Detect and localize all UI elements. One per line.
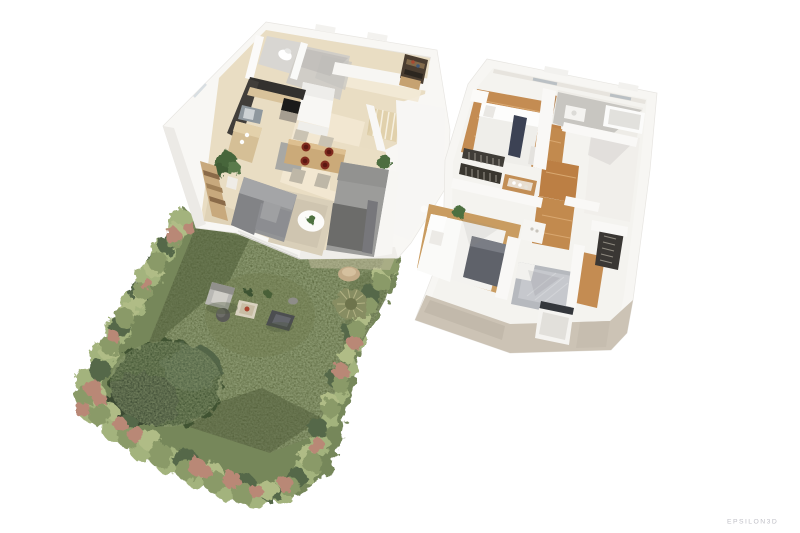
svg-text:EPSILON3D: EPSILON3D (727, 519, 778, 526)
